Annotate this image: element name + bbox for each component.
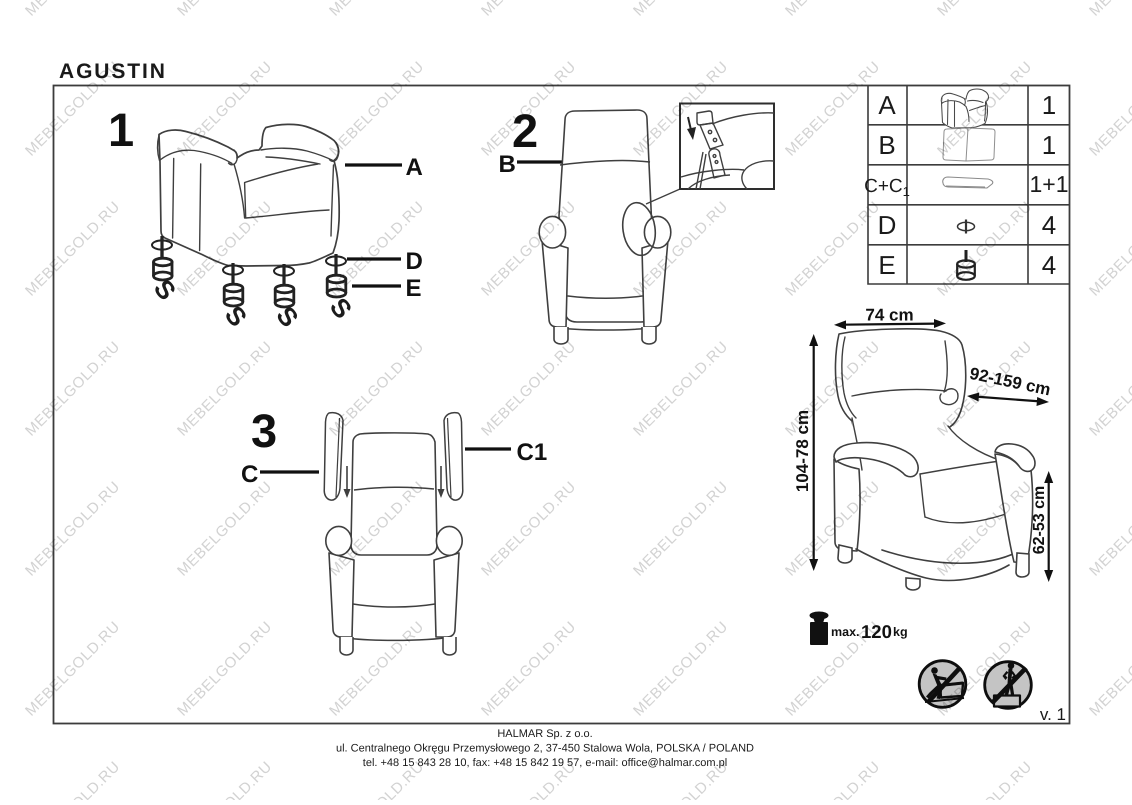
svg-text:C1: C1 bbox=[517, 439, 548, 466]
svg-text:B: B bbox=[878, 130, 895, 160]
svg-text:A: A bbox=[878, 90, 896, 120]
svg-text:B: B bbox=[499, 151, 516, 178]
svg-text:1: 1 bbox=[108, 103, 134, 156]
svg-text:kg: kg bbox=[893, 625, 908, 639]
svg-text:1+1: 1+1 bbox=[1029, 171, 1068, 197]
svg-text:v. 1: v. 1 bbox=[1040, 705, 1066, 724]
svg-text:62-53 cm: 62-53 cm bbox=[1031, 486, 1048, 555]
svg-text:C: C bbox=[241, 461, 258, 488]
svg-text:74 cm: 74 cm bbox=[865, 306, 913, 325]
svg-text:E: E bbox=[878, 250, 895, 280]
svg-text:E: E bbox=[406, 275, 422, 302]
svg-text:D: D bbox=[878, 210, 897, 240]
svg-text:1: 1 bbox=[1042, 130, 1056, 160]
svg-text:1: 1 bbox=[1042, 90, 1056, 120]
svg-text:A: A bbox=[406, 154, 423, 181]
svg-text:3: 3 bbox=[251, 404, 277, 457]
svg-text:4: 4 bbox=[1042, 210, 1056, 240]
svg-text:HALMAR Sp. z o.o.: HALMAR Sp. z o.o. bbox=[497, 728, 592, 740]
svg-text:D: D bbox=[406, 248, 423, 275]
svg-text:ul. Centralnego Okręgu Przemys: ul. Centralnego Okręgu Przemysłowego 2, … bbox=[336, 743, 754, 755]
svg-text:4: 4 bbox=[1042, 250, 1056, 280]
svg-text:tel. +48 15 843 28 10, fax: +4: tel. +48 15 843 28 10, fax: +48 15 842 1… bbox=[363, 757, 727, 769]
